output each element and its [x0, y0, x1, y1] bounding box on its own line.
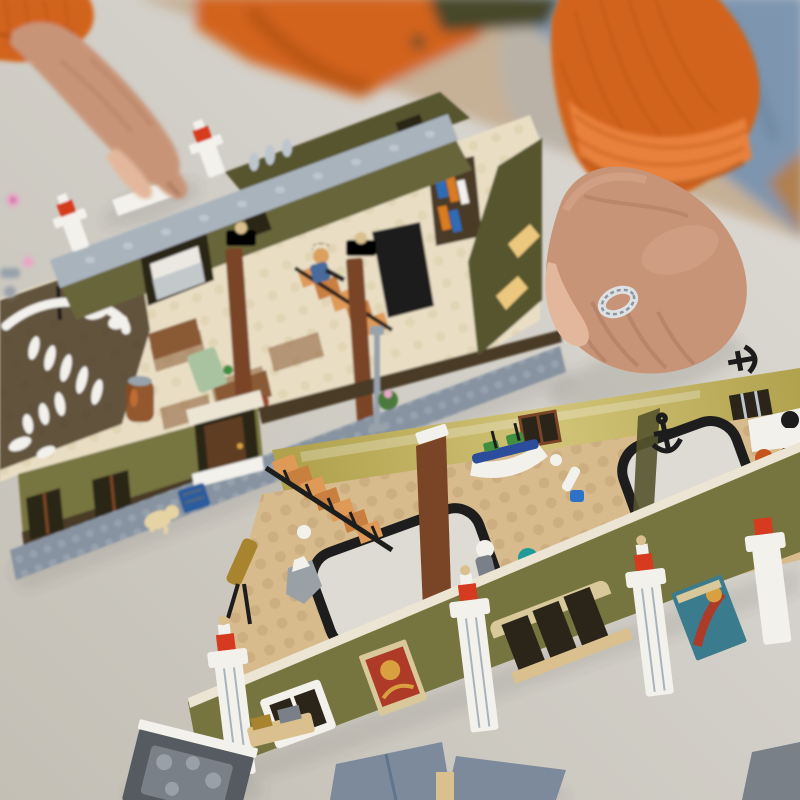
pink-flower-piece-2	[23, 257, 34, 268]
photo-canvas	[0, 0, 800, 800]
minifig-head	[313, 248, 329, 264]
dog-head	[165, 505, 179, 519]
fig2-hair	[781, 411, 799, 429]
lamppost-base	[369, 424, 385, 432]
lamppost-pole	[374, 334, 380, 426]
plant-flower	[384, 390, 392, 398]
shirt-button	[411, 35, 425, 49]
scope-base	[570, 490, 584, 502]
column-red-tile	[458, 583, 478, 601]
bottle-piece	[550, 454, 562, 466]
amber-jar	[126, 376, 154, 422]
grey-round-piece	[4, 286, 16, 298]
pillar-2-knob	[355, 232, 367, 244]
pillar-1-knob	[235, 222, 247, 234]
plate-connector	[436, 772, 454, 800]
jar-body	[126, 380, 154, 422]
lego-assembly-photo	[0, 0, 800, 800]
door-knob	[237, 443, 243, 449]
plant-pot	[223, 365, 233, 375]
flower-plant	[378, 390, 398, 410]
column-red-tile	[753, 517, 773, 535]
column-red-tile	[216, 633, 236, 651]
lamppost-head	[370, 326, 384, 335]
column-red-tile	[634, 553, 654, 571]
flower-center	[11, 198, 16, 203]
jar-highlight	[130, 389, 138, 407]
dog-leg-2	[164, 526, 168, 534]
jar-lid	[128, 376, 152, 386]
statue-wig	[476, 540, 494, 558]
grey-bar-piece	[0, 268, 20, 278]
small-statue	[297, 525, 311, 539]
dog-leg	[150, 524, 154, 532]
